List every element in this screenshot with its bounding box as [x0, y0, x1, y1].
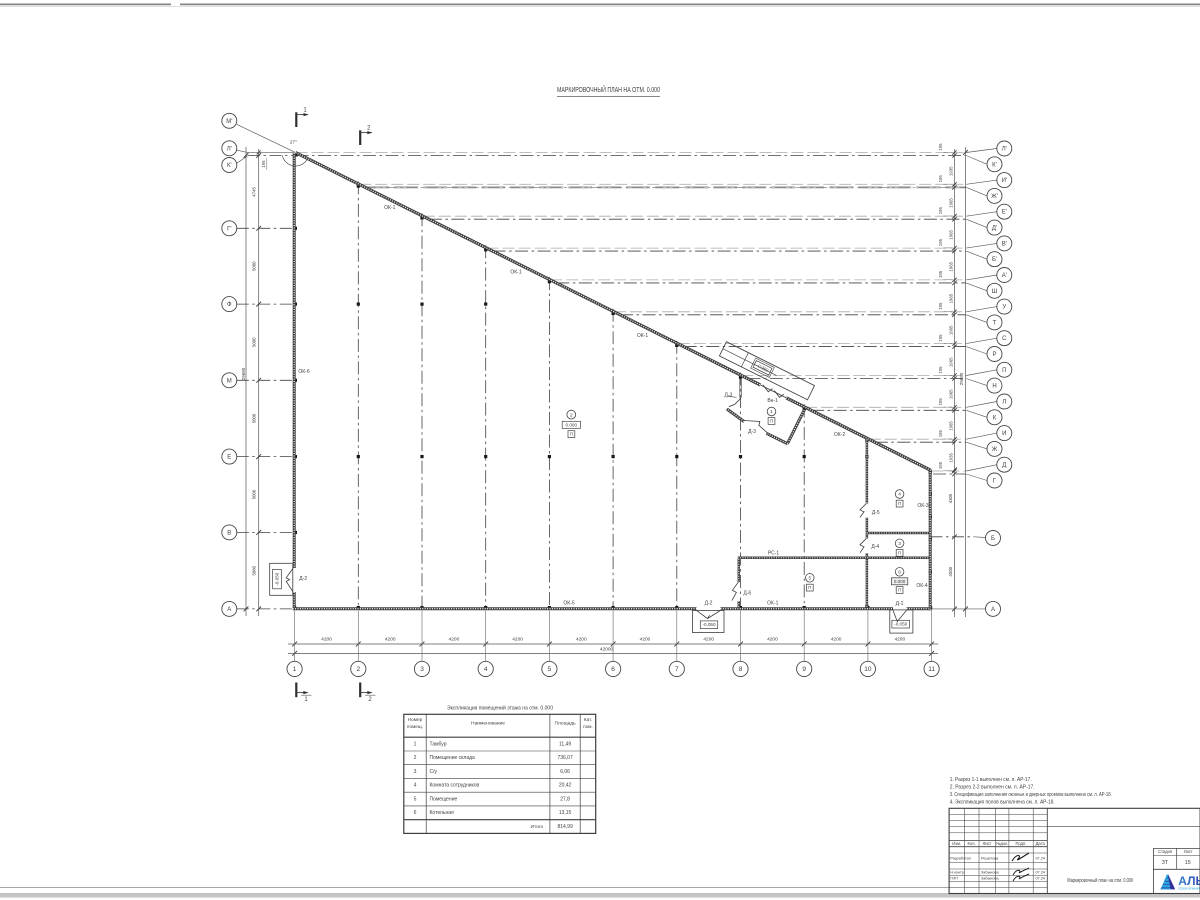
svg-text:пом.: пом.	[583, 724, 593, 729]
svg-text:Итого .: Итого .	[530, 824, 546, 830]
svg-text:С: С	[1002, 336, 1007, 342]
svg-text:1965: 1965	[948, 389, 953, 399]
svg-text:1935: 1935	[948, 453, 953, 463]
svg-text:1. Разрез 1-1 выполнен см. л.: 1. Разрез 1-1 выполнен см. л. АР-17.	[950, 777, 1032, 783]
svg-text:К: К	[993, 415, 997, 421]
svg-text:Подп.: Подп.	[1015, 841, 1026, 846]
svg-text:Д-4: Д-4	[871, 544, 879, 550]
svg-text:42000: 42000	[600, 646, 614, 652]
svg-text:Ж': Ж'	[991, 194, 998, 200]
svg-text:195: 195	[938, 430, 943, 438]
svg-text:-0.050: -0.050	[274, 572, 279, 585]
svg-text:195: 195	[261, 160, 266, 168]
svg-text:-0.050: -0.050	[894, 622, 907, 627]
svg-text:9: 9	[802, 666, 806, 673]
svg-text:736,07: 736,07	[557, 755, 573, 761]
svg-text:3: 3	[898, 541, 901, 547]
svg-text:Е': Е'	[1002, 210, 1007, 216]
svg-text:Д-2: Д-2	[705, 601, 713, 607]
svg-text:А: А	[227, 607, 231, 613]
svg-text:195: 195	[938, 270, 943, 278]
svg-text:Кат.: Кат.	[584, 717, 592, 722]
svg-text:Стадия: Стадия	[1158, 849, 1172, 854]
svg-text:Д-1: Д-1	[896, 601, 904, 607]
svg-text:4: 4	[898, 492, 901, 498]
svg-text:Вн-1: Вн-1	[767, 398, 778, 404]
svg-text:Лист: Лист	[983, 841, 992, 846]
svg-text:5080: 5080	[252, 565, 257, 575]
svg-text:ОК-1: ОК-1	[384, 205, 395, 211]
svg-text:В: В	[227, 530, 231, 536]
svg-text:И: И	[1002, 431, 1006, 437]
svg-text:11,49: 11,49	[559, 742, 571, 748]
svg-text:М: М	[227, 378, 232, 384]
svg-text:4500: 4500	[948, 566, 953, 576]
svg-text:Помещение склада: Помещение склада	[430, 755, 476, 761]
svg-text:Б: Б	[991, 536, 995, 542]
svg-text:ОК-3: ОК-3	[917, 503, 928, 509]
svg-text:М': М'	[226, 119, 232, 125]
svg-text:4200: 4200	[449, 637, 460, 643]
svg-text:П: П	[898, 588, 901, 593]
svg-text:Д-6: Д-6	[743, 591, 751, 597]
svg-text:4305: 4305	[948, 493, 953, 503]
svg-text:195: 195	[938, 175, 943, 183]
svg-text:195: 195	[938, 461, 943, 469]
svg-text:Д': Д'	[992, 226, 997, 232]
svg-text:Л': Л'	[227, 146, 232, 152]
svg-text:8: 8	[739, 666, 743, 673]
svg-text:Маркировочный план на отм. 0.0: Маркировочный план на отм. 0.000	[1067, 877, 1133, 884]
svg-text:07.24: 07.24	[1035, 871, 1045, 875]
svg-text:В': В'	[1002, 241, 1007, 247]
svg-text:4200: 4200	[385, 637, 396, 643]
svg-text:Помещение: Помещение	[430, 796, 458, 802]
svg-text:Ш: Ш	[992, 289, 998, 295]
svg-text:2: 2	[414, 755, 417, 761]
svg-text:Комната сотрудников: Комната сотрудников	[430, 783, 480, 789]
svg-text:К': К'	[227, 163, 232, 169]
svg-text:А': А'	[1002, 273, 1007, 279]
svg-text:Забынова: Забынова	[981, 877, 999, 881]
svg-text:Т: Т	[993, 320, 997, 326]
svg-text:Ж: Ж	[992, 447, 998, 453]
svg-text:-0.050: -0.050	[702, 622, 715, 627]
svg-text:Номер: Номер	[408, 717, 423, 722]
svg-text:ОК-1: ОК-1	[637, 333, 648, 339]
svg-text:6: 6	[414, 810, 417, 816]
svg-text:4200: 4200	[894, 637, 905, 643]
svg-text:И': И'	[1002, 178, 1007, 184]
svg-text:4200: 4200	[576, 637, 587, 643]
svg-text:П: П	[898, 550, 901, 555]
svg-text:Площадь: Площадь	[554, 721, 576, 727]
svg-text:6: 6	[898, 569, 901, 575]
svg-text:4200: 4200	[831, 637, 842, 643]
svg-text:Г': Г'	[227, 226, 231, 232]
svg-text:07.24: 07.24	[1035, 877, 1045, 881]
svg-text:6: 6	[611, 666, 615, 673]
svg-text:1965: 1965	[948, 198, 953, 208]
svg-text:4: 4	[414, 783, 417, 789]
svg-text:3: 3	[420, 666, 424, 673]
svg-text:ОК-6: ОК-6	[298, 369, 309, 375]
svg-text:Д-5: Д-5	[872, 510, 880, 516]
svg-text:195: 195	[938, 334, 943, 342]
svg-text:15: 15	[1185, 860, 1191, 866]
svg-text:ОК-1: ОК-1	[767, 601, 778, 607]
svg-text:П: П	[1002, 368, 1006, 374]
svg-text:помещ.: помещ.	[407, 724, 423, 729]
svg-text:П: П	[808, 585, 811, 590]
svg-text:ОК-4: ОК-4	[916, 583, 927, 589]
svg-text:4: 4	[484, 666, 488, 673]
svg-text:7: 7	[675, 666, 679, 673]
svg-text:07.24: 07.24	[1035, 856, 1045, 860]
svg-text:5: 5	[548, 666, 552, 673]
svg-text:РС-1: РС-1	[768, 551, 780, 557]
svg-text:6,06: 6,06	[560, 769, 570, 775]
svg-text:Тамбур: Тамбур	[430, 742, 447, 748]
svg-text:1965: 1965	[948, 325, 953, 335]
svg-text:П: П	[770, 419, 773, 424]
svg-text:11: 11	[928, 666, 935, 673]
svg-text:МАРКИРОВОЧНЫЙ ПЛАН НА ОТМ. 0.0: МАРКИРОВОЧНЫЙ ПЛАН НА ОТМ. 0.000	[557, 85, 660, 94]
svg-text:Д-3: Д-3	[748, 429, 756, 435]
svg-text:С/у: С/у	[430, 769, 438, 775]
svg-text:4200: 4200	[321, 637, 332, 643]
svg-text:1965: 1965	[948, 421, 953, 431]
svg-text:3: 3	[414, 769, 417, 775]
svg-text:ГИП: ГИП	[950, 877, 958, 881]
svg-text:5000: 5000	[252, 489, 257, 499]
svg-text:2: 2	[356, 666, 360, 673]
svg-text:Решетова: Решетова	[981, 856, 999, 860]
svg-text:Кол.: Кол.	[968, 841, 976, 846]
svg-text:Д-2: Д-2	[299, 576, 307, 582]
svg-text:1935: 1935	[948, 166, 953, 176]
svg-text:№док.: №док.	[996, 841, 1008, 846]
svg-text:5000: 5000	[252, 337, 257, 347]
svg-text:А: А	[991, 607, 995, 613]
svg-text:27,8: 27,8	[560, 796, 570, 802]
svg-text:ОК-5: ОК-5	[563, 601, 574, 607]
svg-text:1965: 1965	[948, 261, 953, 271]
svg-text:ЗТ: ЗТ	[1162, 860, 1169, 866]
svg-text:195: 195	[938, 238, 943, 246]
svg-text:5: 5	[414, 796, 417, 802]
svg-text:Лист: Лист	[1184, 849, 1193, 854]
svg-text:195: 195	[938, 143, 943, 151]
svg-text:2: 2	[570, 412, 573, 418]
svg-text:К': К'	[992, 162, 997, 168]
svg-text:Ф: Ф	[227, 302, 232, 308]
svg-text:Изм.: Изм.	[952, 841, 961, 846]
svg-text:Экспликация помещений этажа на: Экспликация помещений этажа на отм. 0.00…	[447, 705, 553, 712]
svg-text:Р: Р	[992, 352, 996, 358]
svg-text:1: 1	[770, 409, 773, 415]
svg-text:5000: 5000	[252, 413, 257, 423]
svg-text:1965: 1965	[948, 293, 953, 303]
svg-text:27°: 27°	[290, 140, 297, 146]
svg-text:10: 10	[864, 666, 872, 673]
svg-text:Наименование: Наименование	[471, 721, 505, 727]
svg-text:П: П	[898, 501, 901, 506]
svg-text:195: 195	[938, 398, 943, 406]
svg-text:814,99: 814,99	[557, 824, 573, 830]
svg-text:Разработал: Разработал	[950, 856, 971, 860]
svg-text:4. Экспликация полов выполнена: 4. Экспликация полов выполнена см. л. АР…	[950, 799, 1055, 805]
svg-text:Д: Д	[1002, 463, 1006, 469]
svg-text:1965: 1965	[948, 357, 953, 367]
svg-text:Е: Е	[227, 455, 231, 461]
svg-text:3. Спецификация заполнения око: 3. Спецификация заполнения оконных и две…	[950, 792, 1112, 798]
svg-text:ОК-1: ОК-1	[510, 269, 521, 275]
svg-text:13,15: 13,15	[559, 810, 572, 816]
svg-text:195: 195	[938, 302, 943, 310]
svg-text:1: 1	[414, 742, 417, 748]
svg-text:Л: Л	[1002, 399, 1006, 405]
svg-text:Д-3: Д-3	[724, 393, 732, 399]
svg-text:195: 195	[938, 207, 943, 215]
svg-text:ОК-2: ОК-2	[834, 432, 845, 438]
svg-text:195: 195	[938, 366, 943, 374]
svg-text:строительная компания: строительная компания	[1178, 887, 1200, 891]
svg-text:П: П	[570, 432, 573, 437]
svg-text:4745: 4745	[252, 187, 257, 197]
svg-text:0.000: 0.000	[566, 422, 578, 427]
svg-text:4200: 4200	[512, 637, 523, 643]
svg-text:1965: 1965	[948, 230, 953, 240]
svg-text:20,42: 20,42	[559, 783, 572, 789]
svg-text:Котельная: Котельная	[430, 810, 454, 816]
svg-text:1: 1	[293, 666, 297, 673]
svg-text:29680: 29680	[959, 372, 964, 385]
svg-text:Л': Л'	[1002, 146, 1007, 152]
svg-text:Н: Н	[992, 384, 996, 390]
svg-text:Дата: Дата	[1036, 841, 1046, 846]
svg-text:2. Разрез 2-2 выполнен см. л.: 2. Разрез 2-2 выполнен см. л. АР-17.	[950, 784, 1035, 790]
svg-text:5: 5	[808, 575, 811, 581]
svg-text:5080: 5080	[252, 261, 257, 271]
svg-text:4200: 4200	[767, 637, 778, 643]
svg-text:Н.контр.: Н.контр.	[950, 871, 965, 875]
svg-text:Забынова: Забынова	[981, 871, 999, 875]
svg-text:0.000: 0.000	[894, 579, 906, 584]
svg-text:Б': Б'	[992, 257, 997, 263]
svg-text:4200: 4200	[703, 637, 714, 643]
svg-text:4200: 4200	[640, 637, 651, 643]
svg-text:29680: 29680	[241, 367, 246, 380]
svg-text:У: У	[1002, 305, 1006, 311]
